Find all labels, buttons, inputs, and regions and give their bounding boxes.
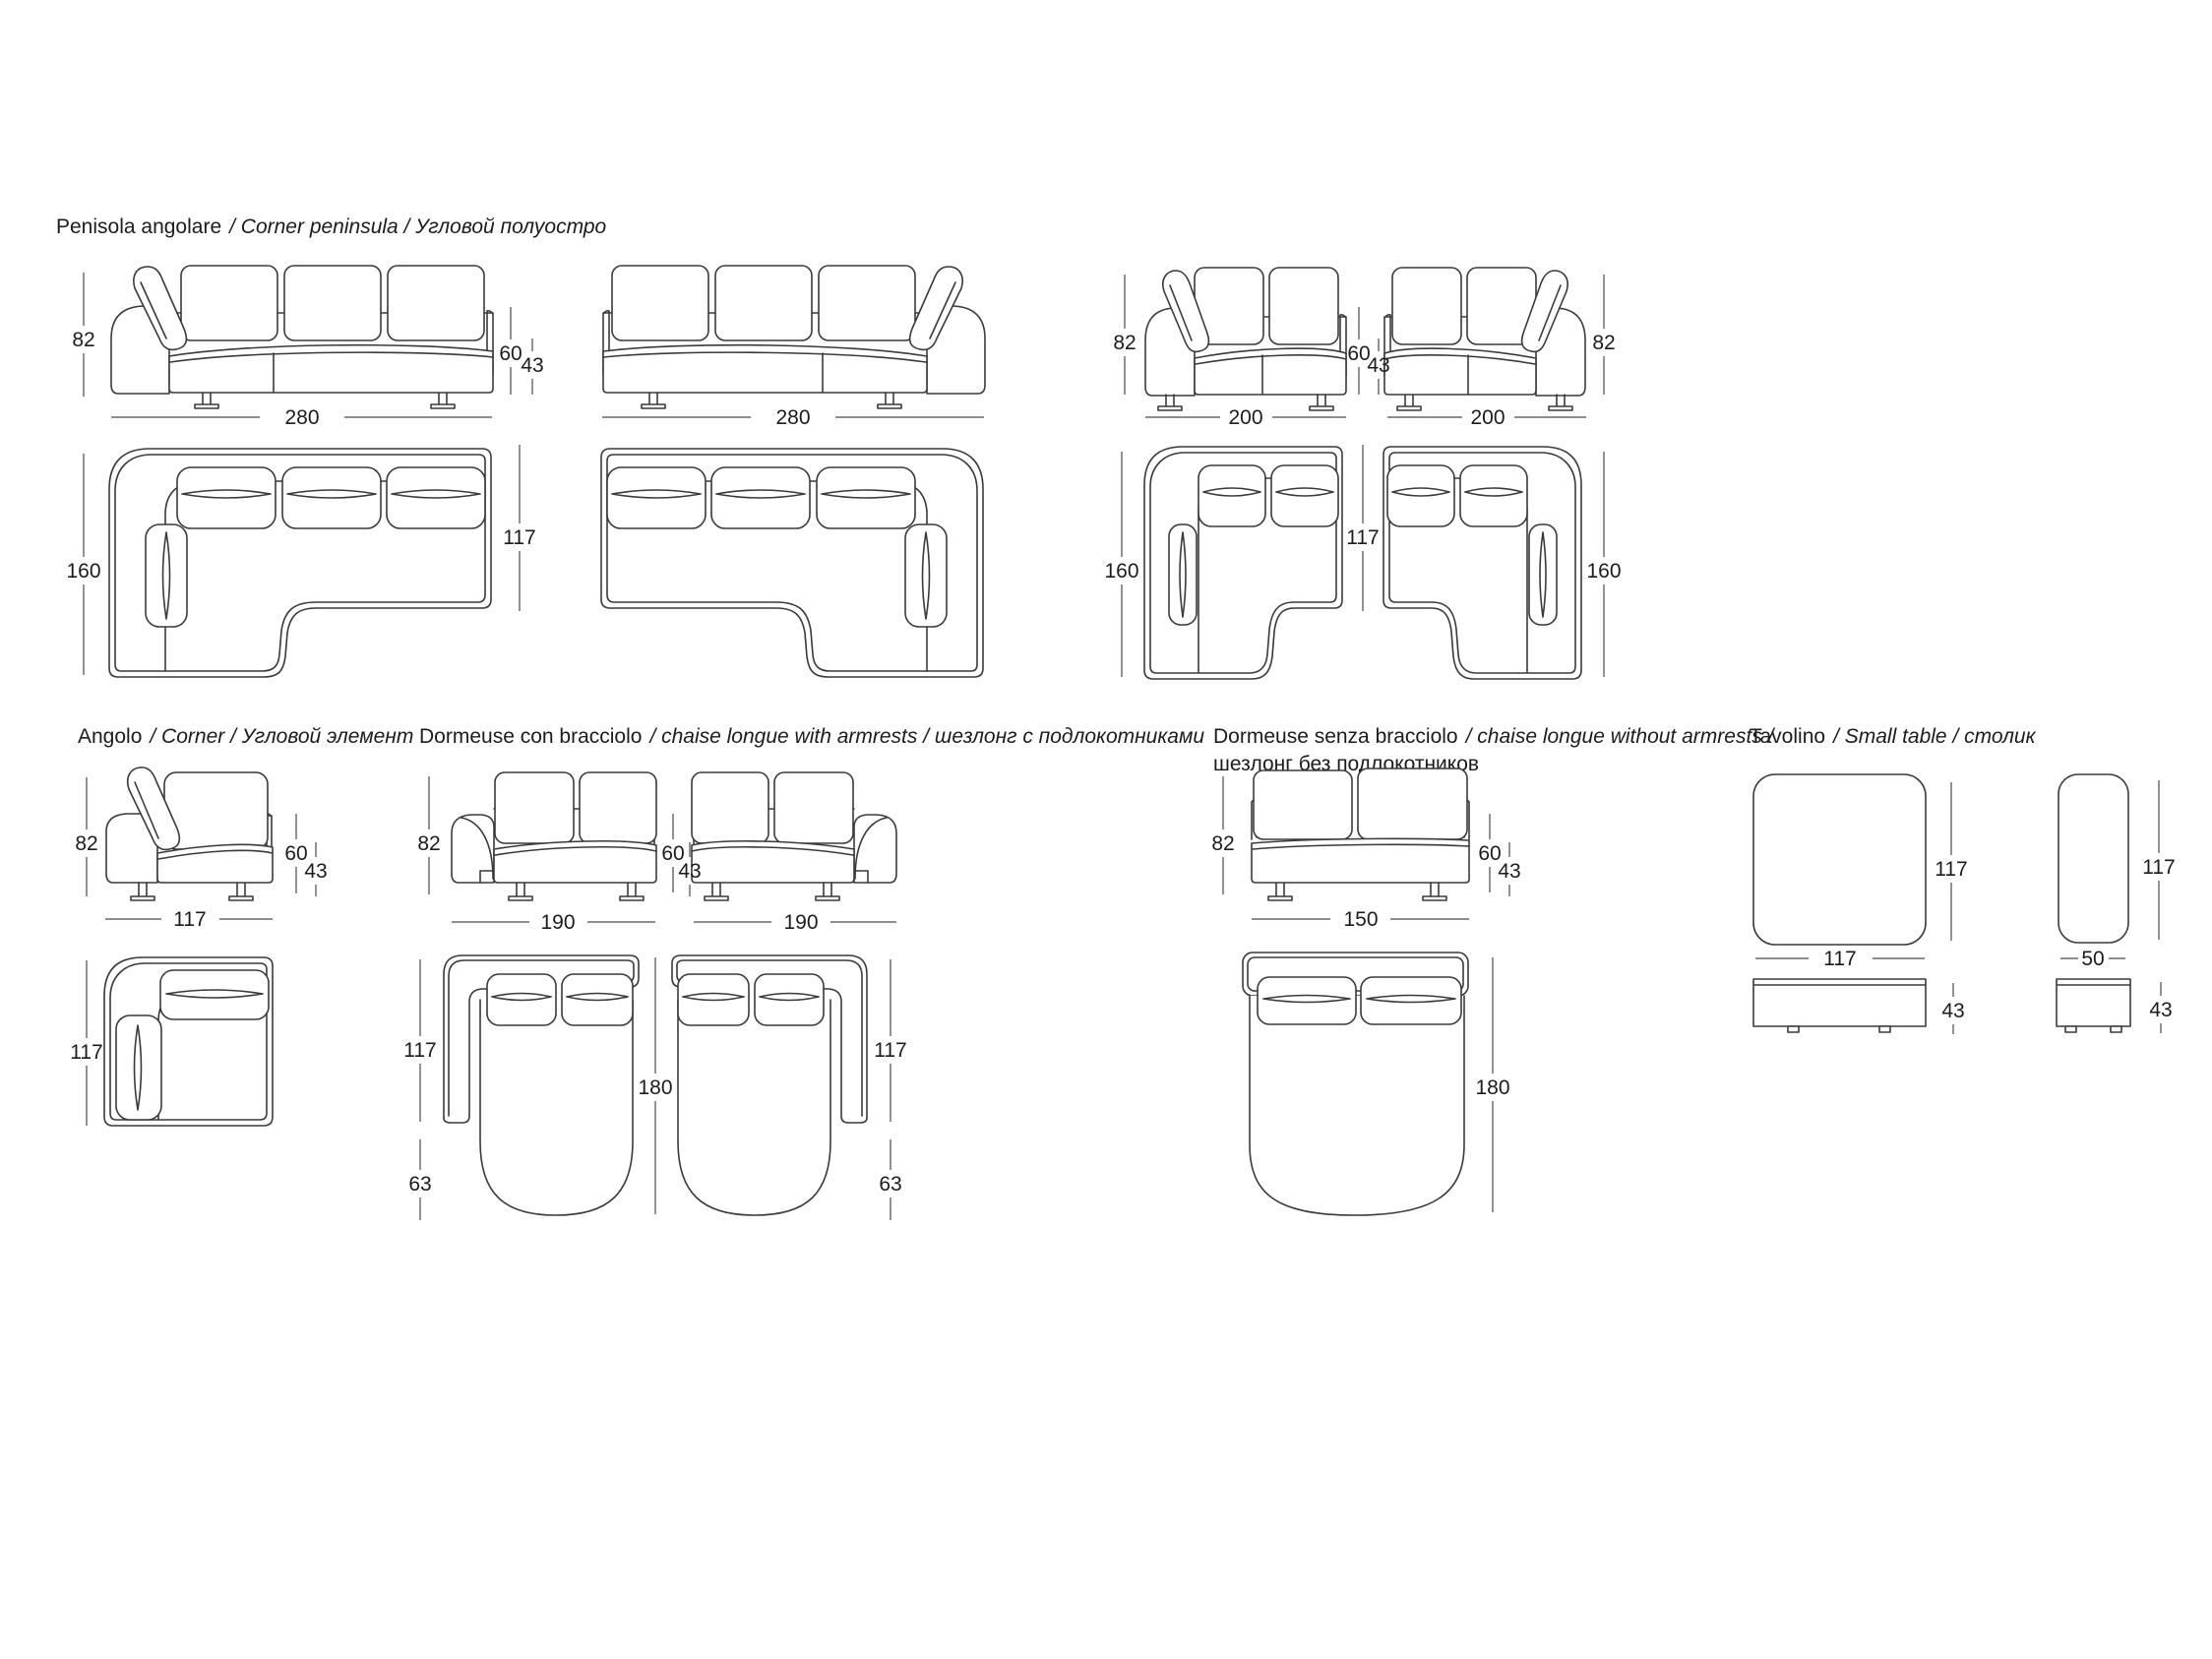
dormeuse-armless-top: [1243, 952, 1468, 1215]
dim-height-43: 43: [2149, 999, 2172, 1021]
peninsula-280-right-front: [603, 266, 985, 408]
corner-element-top: [104, 957, 273, 1126]
spec-sheet-canvas: Penisola angolare/ Corner peninsula / Уг…: [0, 0, 2212, 1659]
dim-width-117: 117: [1823, 948, 1856, 970]
dim-width-280: 280: [775, 406, 810, 429]
dim-depth-63: 63: [408, 1173, 431, 1196]
dim-depth-180: 180: [638, 1076, 672, 1099]
dim-height-43: 43: [1941, 1000, 1964, 1022]
peninsula-200-right-top: [1383, 447, 1581, 679]
dim-width-50: 50: [2081, 948, 2104, 970]
dim-depth-117: 117: [403, 1039, 436, 1062]
large-table-top-view: [1753, 774, 1926, 945]
section-title-peninsula: Penisola angolare/ Corner peninsula / Уг…: [56, 215, 607, 238]
dim-depth-160: 160: [66, 560, 100, 583]
peninsula-200-right-front: [1384, 268, 1585, 410]
dim-width-150: 150: [1343, 908, 1378, 931]
dim-height-82: 82: [72, 329, 94, 351]
dim-height-43: 43: [304, 860, 327, 883]
peninsula-280-right-top: [601, 449, 983, 677]
peninsula-280-left-top: [109, 449, 491, 677]
dormeuse-armrest-right-top: [672, 955, 867, 1215]
section-title-dormeuse-armrests: Dormeuse con bracciolo/ chaise longue wi…: [419, 725, 1204, 748]
section-title-corner: Angolo/ Corner / Угловой элемент: [78, 725, 413, 748]
dormeuse-armrest-right-front: [692, 772, 896, 900]
dim-height-43: 43: [521, 354, 543, 377]
dim-width-117: 117: [173, 908, 206, 931]
dim-height-82: 82: [75, 832, 97, 855]
dim-width-190: 190: [540, 911, 575, 934]
dim-depth-180: 180: [1475, 1076, 1509, 1099]
section-title-small-table: Tavolino/ Small table / столик: [1750, 725, 2037, 748]
furniture-spec-sheet: Penisola angolare/ Corner peninsula / Уг…: [0, 0, 2212, 1659]
large-table-front-view: [1753, 979, 1926, 1032]
dim-width-190: 190: [783, 911, 818, 934]
dim-height-82: 82: [417, 832, 440, 855]
dim-height-82: 82: [1113, 332, 1136, 354]
dim-width-200: 200: [1228, 406, 1262, 429]
dim-height-60: 60: [499, 342, 522, 365]
dim-depth-117: 117: [874, 1039, 906, 1062]
dim-height-43: 43: [1498, 860, 1520, 883]
dormeuse-armrest-left-front: [452, 772, 656, 900]
dim-depth-160: 160: [1586, 560, 1621, 583]
dim-depth-117: 117: [70, 1041, 102, 1064]
dormeuse-armrest-left-top: [444, 955, 639, 1215]
dim-depth-117: 117: [1935, 858, 1967, 881]
dim-height-43: 43: [1367, 354, 1389, 377]
section-title-dormeuse-no-armrests: Dormeuse senza bracciolo/ chaise longue …: [1213, 725, 1776, 748]
dim-depth-63: 63: [879, 1173, 901, 1196]
dim-depth-117: 117: [2142, 856, 2175, 879]
corner-element-front: [106, 768, 273, 900]
peninsula-200-left-top: [1144, 447, 1342, 679]
dim-height-82: 82: [1211, 832, 1234, 855]
dim-depth-160: 160: [1104, 560, 1138, 583]
dim-width-200: 200: [1470, 406, 1505, 429]
dormeuse-armless-front: [1252, 768, 1469, 900]
dim-depth-117: 117: [1346, 526, 1379, 549]
dim-width-280: 280: [284, 406, 319, 429]
small-table-top-view: [2058, 774, 2128, 943]
dim-height-43: 43: [678, 860, 701, 883]
small-table-front-view: [2057, 979, 2130, 1032]
dim-height-82: 82: [1592, 332, 1615, 354]
dim-depth-117: 117: [503, 526, 535, 549]
peninsula-280-left-front: [111, 266, 493, 408]
peninsula-200-left-front: [1145, 268, 1346, 410]
